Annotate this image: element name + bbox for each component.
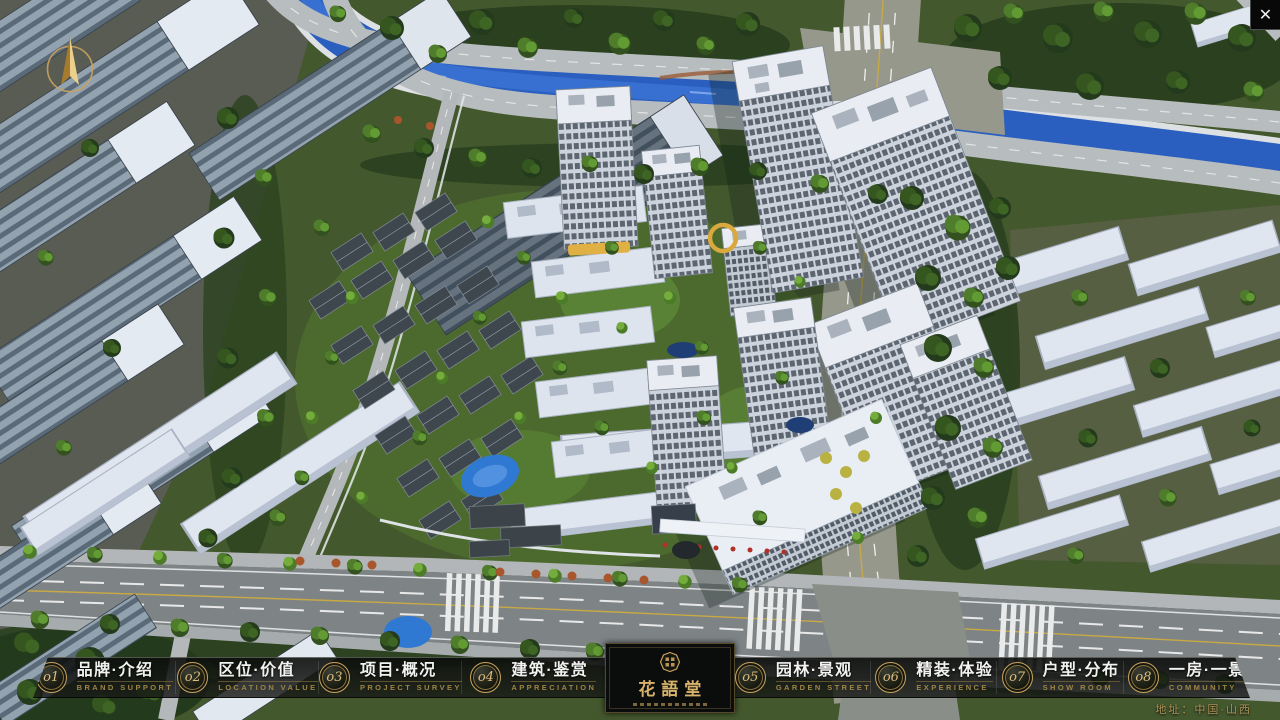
nav-item-interior-experience-badge: o6 (875, 662, 906, 693)
presentation-viewport: ✕ o1 品牌·介绍BRAND SUPPORT o2 区位·价值LOCATION… (0, 0, 1280, 720)
nav-item-label-en: LOCATION VALUE (218, 681, 317, 692)
nav-item-garden-landscape-badge: o5 (735, 662, 766, 693)
nav-item-label-zh: 区位·价值 (218, 663, 317, 680)
nav-item-architecture[interactable]: o4 建筑·鉴赏APPRECIATION (462, 658, 605, 697)
nav-item-number: o8 (1135, 670, 1151, 685)
project-address: 地址：中国·山西 (1155, 701, 1252, 717)
nav-item-label-en: COMMUNITY (1169, 681, 1246, 692)
nav-item-brand-intro[interactable]: o1 品牌·介绍BRAND SUPPORT (33, 658, 176, 697)
nav-item-project-overview[interactable]: o3 项目·概况PROJECT SURVEY (319, 658, 462, 697)
nav-item-floorplan-distribution-badge: o7 (1002, 662, 1033, 693)
nav-item-number: o5 (742, 670, 758, 685)
aerial-masterplan-render[interactable] (0, 0, 1280, 720)
nav-item-location-value[interactable]: o2 区位·价值LOCATION VALUE (176, 658, 319, 697)
nav-item-brand-intro-badge: o1 (36, 662, 67, 693)
nav-item-one-room-one-view[interactable]: o8 一房·一景COMMUNITY (1124, 658, 1250, 697)
nav-item-label-zh: 建筑·鉴赏 (511, 663, 596, 680)
project-logo-frame: 花語堂 (609, 647, 731, 709)
nav-item-number: o1 (43, 670, 59, 685)
nav-item-location-value-badge: o2 (177, 662, 208, 693)
nav-item-number: o2 (185, 670, 201, 685)
nav-item-label-en: BRAND SUPPORT (77, 681, 174, 692)
project-logo-tagline (633, 703, 707, 706)
nav-item-label-zh: 精装·体验 (916, 663, 993, 680)
nav-item-number: o6 (883, 670, 899, 685)
nav-item-label-en: EXPERIENCE (916, 681, 993, 692)
nav-item-garden-landscape[interactable]: o5 园林·景观GARDEN STREET (735, 658, 871, 697)
nav-item-label-en: GARDEN STREET (776, 681, 871, 692)
project-logo[interactable]: 花語堂 (605, 643, 735, 713)
nav-item-label-zh: 园林·景观 (776, 663, 871, 680)
nav-item-architecture-badge: o4 (470, 662, 501, 693)
project-logo-title: 花語堂 (632, 675, 707, 700)
nav-item-label-zh: 户型·分布 (1043, 663, 1120, 680)
nav-item-interior-experience[interactable]: o6 精装·体验EXPERIENCE (871, 658, 997, 697)
bottom-nav: o1 品牌·介绍BRAND SUPPORT o2 区位·价值LOCATION V… (0, 657, 1280, 698)
nav-item-label-zh: 品牌·介绍 (77, 663, 174, 680)
nav-item-label-en: SHOW ROOM (1043, 681, 1120, 692)
nav-segment-left: o1 品牌·介绍BRAND SUPPORT o2 区位·价值LOCATION V… (33, 657, 605, 698)
logo-seal-icon (659, 651, 681, 673)
nav-item-number: o4 (478, 670, 494, 685)
nav-item-number: o3 (326, 670, 342, 685)
nav-item-label-en: PROJECT SURVEY (360, 681, 462, 692)
nav-item-floorplan-distribution[interactable]: o7 户型·分布SHOW ROOM (997, 658, 1123, 697)
close-button[interactable]: ✕ (1250, 0, 1280, 30)
nav-item-label-zh: 项目·概况 (360, 663, 462, 680)
nav-item-project-overview-badge: o3 (319, 662, 350, 693)
nav-item-number: o7 (1009, 670, 1025, 685)
nav-item-one-room-one-view-badge: o8 (1128, 662, 1159, 693)
nav-item-label-en: APPRECIATION (511, 681, 596, 692)
nav-segment-right: o5 园林·景观GARDEN STREET o6 精装·体验EXPERIENCE… (735, 657, 1250, 698)
nav-item-label-zh: 一房·一景 (1169, 663, 1246, 680)
